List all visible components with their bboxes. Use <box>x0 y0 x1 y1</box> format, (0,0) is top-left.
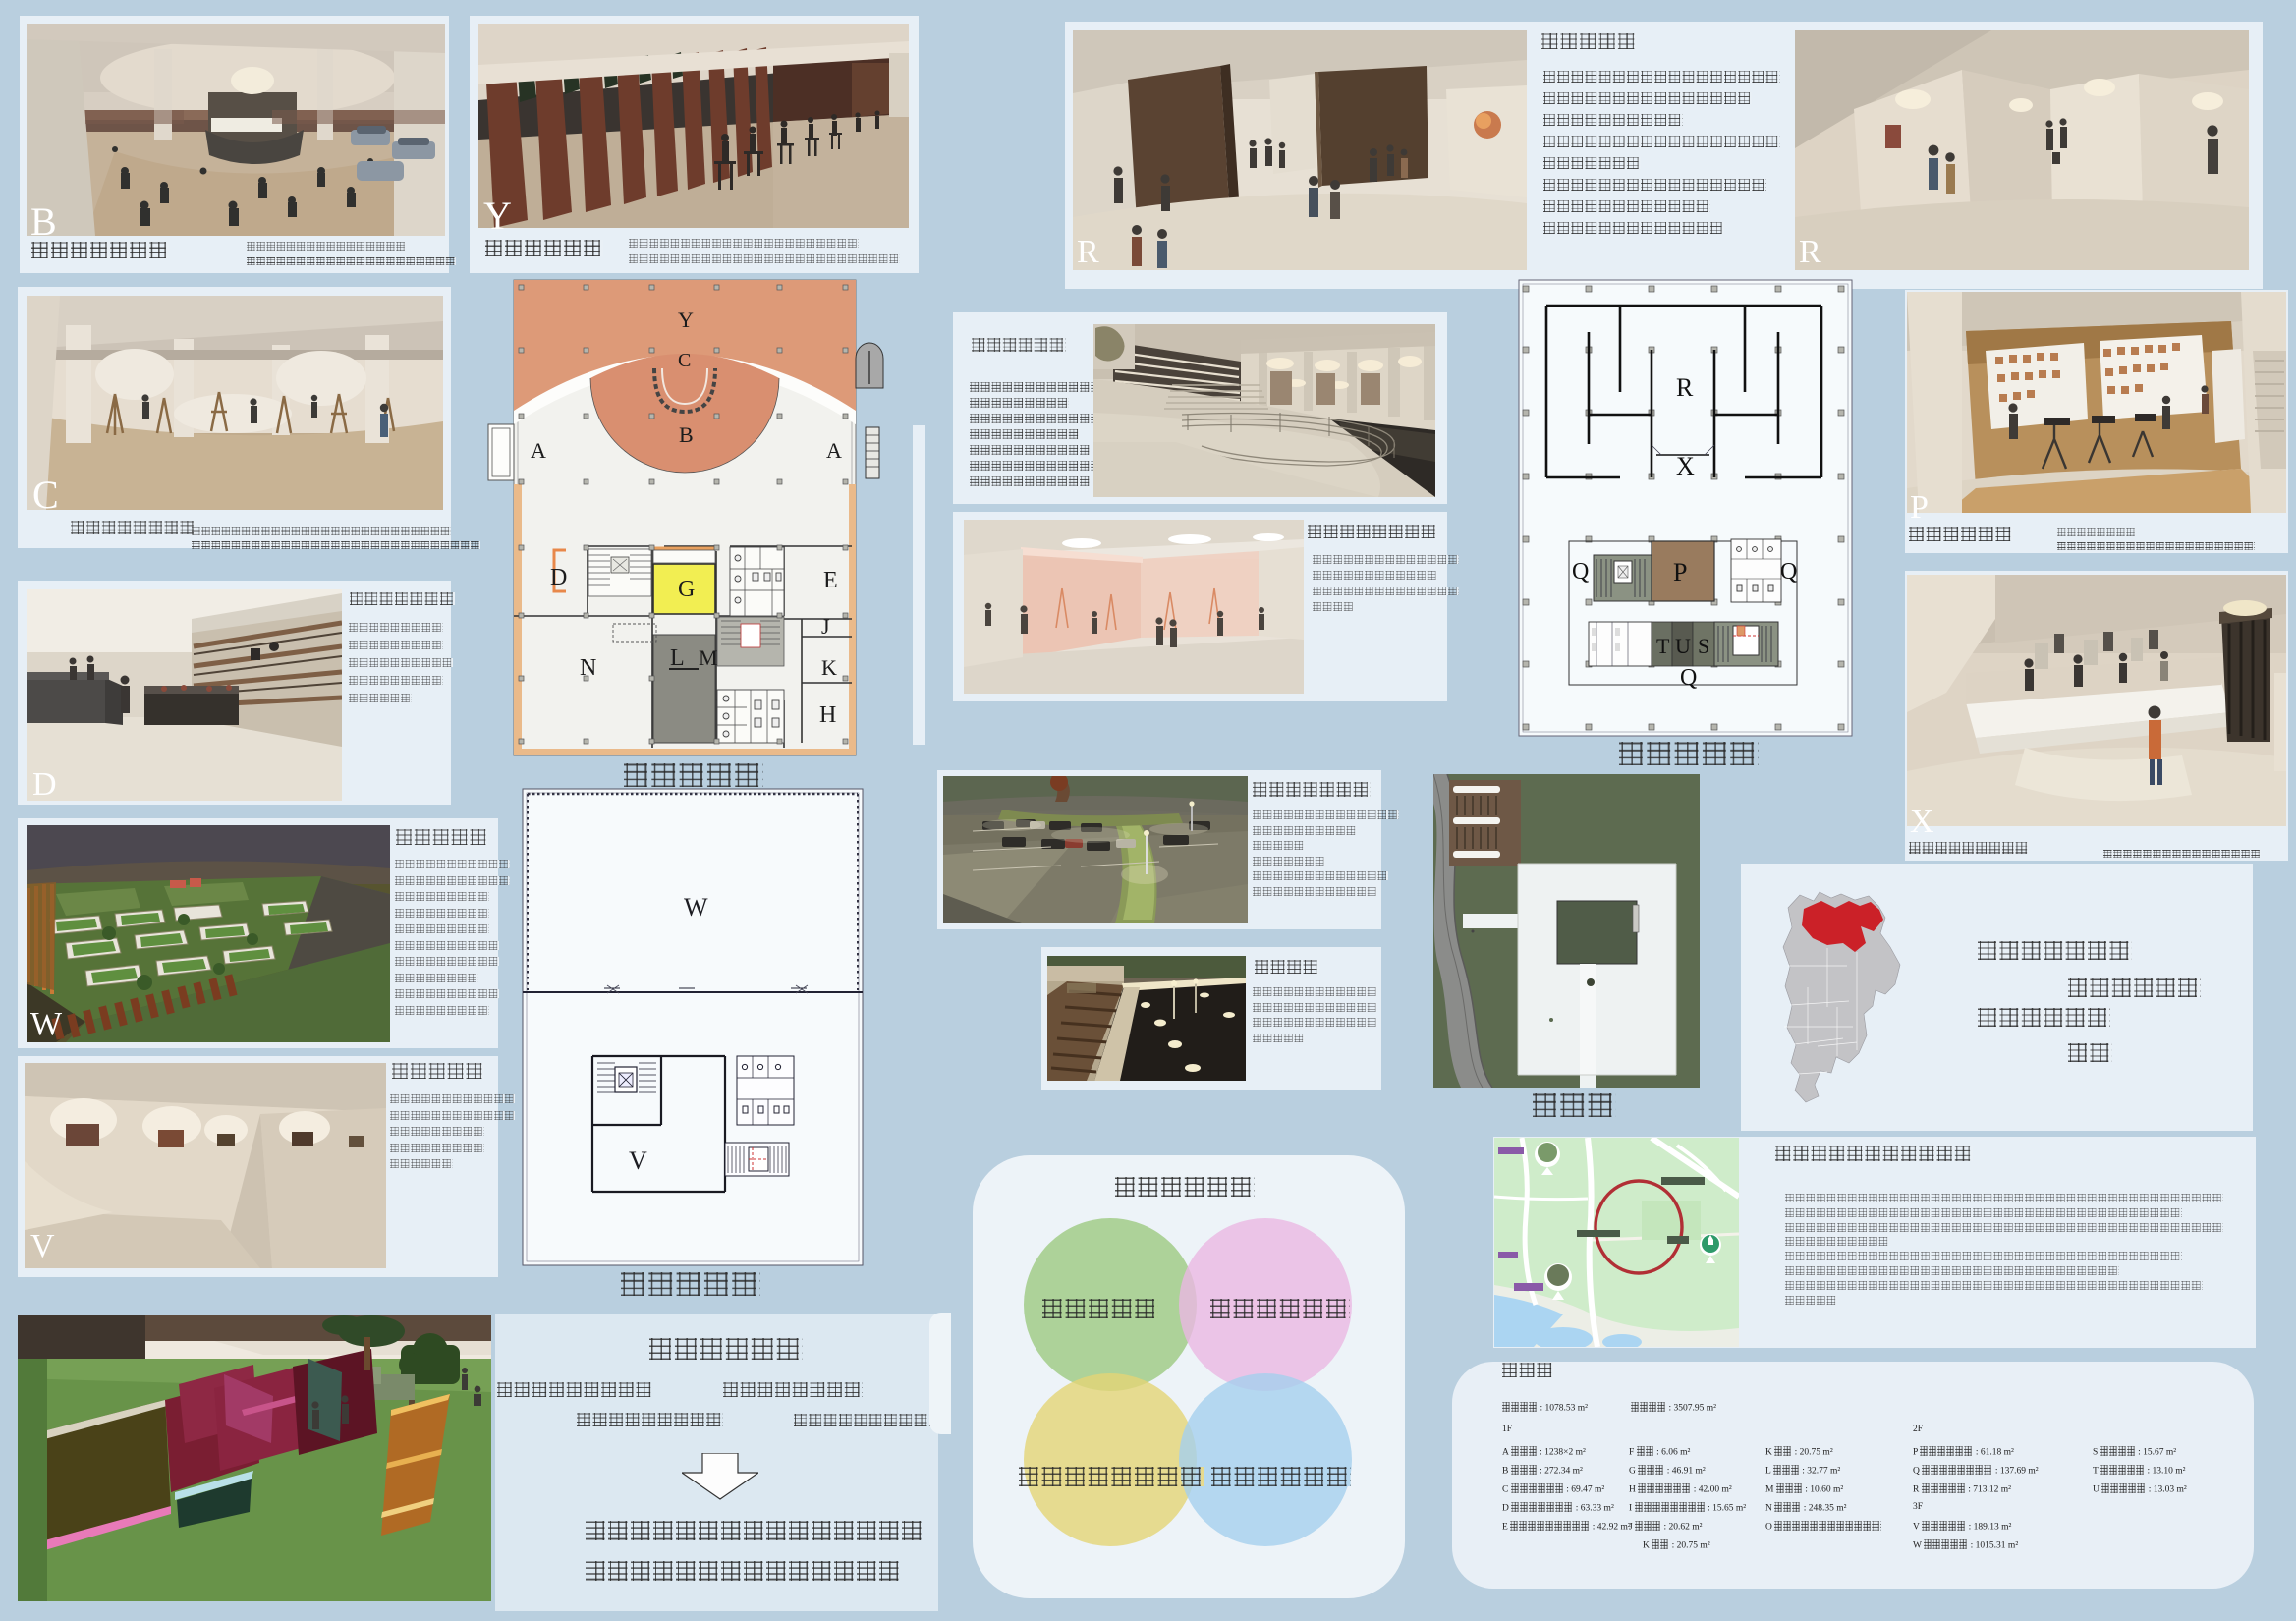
svg-text:R: R <box>1676 373 1694 402</box>
svg-text:D: D <box>550 565 567 590</box>
svg-text:M: M <box>699 645 718 670</box>
svg-text:T: T <box>1656 634 1670 658</box>
svg-text:P: P <box>1673 558 1687 587</box>
svg-text:N: N <box>580 655 596 681</box>
svg-text:G: G <box>678 577 695 602</box>
svg-text:U: U <box>1675 634 1691 658</box>
svg-text:B: B <box>679 422 694 447</box>
svg-text:S: S <box>1698 634 1709 658</box>
svg-text:L: L <box>670 645 685 671</box>
svg-text:C: C <box>678 350 691 371</box>
svg-text:Q: Q <box>1680 665 1697 691</box>
svg-text:J: J <box>821 614 830 639</box>
svg-text:W: W <box>684 893 708 922</box>
svg-text:Q: Q <box>1572 559 1589 585</box>
svg-text:Q: Q <box>1780 559 1797 585</box>
svg-text:X: X <box>1676 452 1695 480</box>
svg-text:V: V <box>629 1146 647 1175</box>
svg-text:A: A <box>826 438 842 463</box>
svg-text:A: A <box>531 438 546 463</box>
svg-text:H: H <box>819 702 836 728</box>
svg-text:K: K <box>821 655 837 680</box>
svg-text:Y: Y <box>678 307 694 332</box>
svg-text:E: E <box>823 568 838 593</box>
